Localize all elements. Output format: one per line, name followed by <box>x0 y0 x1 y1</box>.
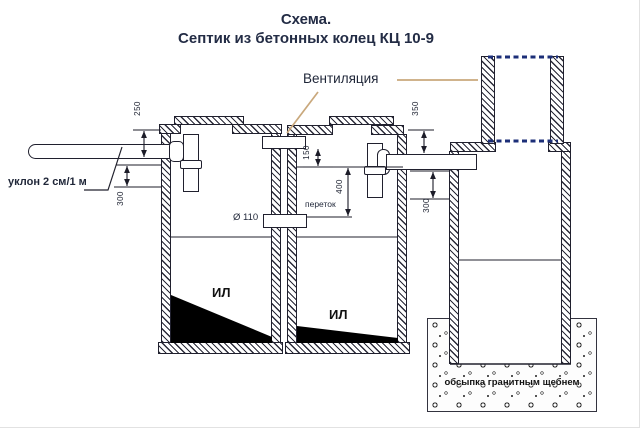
diagram-subtitle: Септик из бетонных колец КЦ 10-9 <box>0 30 612 47</box>
tank1-tee-coupling <box>180 160 202 169</box>
vent-box-left-wall <box>481 56 495 144</box>
dim-pipe-to-overflow: 400 <box>336 179 344 194</box>
inlet-wall-coupling <box>169 141 184 162</box>
tank1-cover-plate <box>174 116 244 125</box>
tank2-cover-plate <box>329 116 394 125</box>
tank1-left-wall <box>161 133 171 343</box>
ventilation-label: Вентиляция <box>303 71 378 86</box>
septic-scheme-diagram: Схема. Септик из бетонных колец КЦ 10-9 <box>0 0 640 428</box>
well3-right-wall <box>561 151 571 364</box>
dim-outlet-depth: 350 <box>412 101 420 116</box>
dim-tank1-tee-drop: 300 <box>117 191 125 206</box>
tank1-right-wall <box>271 133 281 343</box>
tank1-sludge-label: ИЛ <box>212 285 230 300</box>
sludge-wedges <box>171 295 398 343</box>
overflow-label: переток <box>305 199 336 209</box>
vent-connector-pipe <box>262 136 306 149</box>
tank2-left-wall <box>287 134 297 343</box>
tank2-tee-coupling <box>364 166 386 175</box>
vent-box-dashed-lines <box>488 57 558 141</box>
tank1-bottom-slab <box>158 342 283 354</box>
well3-interior <box>458 151 563 364</box>
tank2-sludge-label: ИЛ <box>329 307 347 322</box>
gravel-backfill-label: обсыпка гранитным щебнем <box>432 377 592 388</box>
pipe-diameter-label: Ø 110 <box>233 212 258 223</box>
vent-box-right-wall <box>550 56 564 144</box>
overflow-pipe <box>263 214 307 228</box>
diagram-title: Схема. <box>0 11 612 28</box>
well3-left-wall <box>449 151 459 364</box>
inlet-pipe <box>28 144 174 159</box>
dim-vent-to-pipe: 150 <box>303 145 311 160</box>
outlet-pipe <box>386 154 477 170</box>
tank2-bottom-slab <box>285 342 410 354</box>
dim-tank3-pipe-drop: 300 <box>423 198 431 213</box>
dim-inlet-depth: 250 <box>134 101 142 116</box>
slope-label: уклон 2 см/1 м <box>8 176 87 188</box>
